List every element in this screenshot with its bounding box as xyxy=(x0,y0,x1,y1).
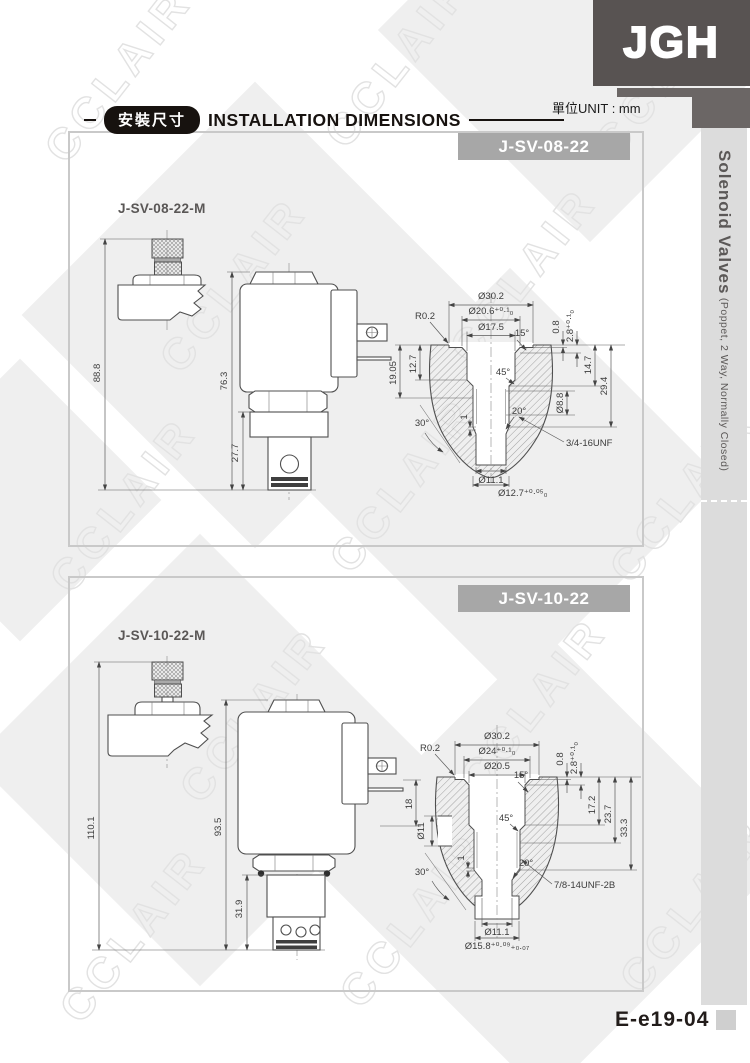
sidebar-category-subtitle: (Poppet, 2 Way, Normally Closed) xyxy=(718,294,730,471)
sidebar-dash-divider xyxy=(701,500,747,502)
dim-d08: 0.8 xyxy=(551,320,562,333)
drawing-variant-m: J-SV-10-22-M 110.1 xyxy=(86,628,212,950)
technical-drawing-jsv-10-22: J-SV-10-22-M 110.1 xyxy=(70,578,642,990)
dim-d11: Ø11 xyxy=(416,822,427,839)
dim-a30: 30° xyxy=(415,867,430,878)
dim-v333: 33.3 xyxy=(619,819,630,838)
header-rule-right xyxy=(469,119,564,121)
dim-one: 1 xyxy=(456,855,467,860)
dim-d158: Ø15.8⁺⁰·⁰⁹₊₀.₀₇ xyxy=(465,941,530,952)
dim-d08: 0.8 xyxy=(555,752,566,765)
catalog-page: CCLAIR CCLAIR CCLAIR CCLAIR CCLAIR CCLAI… xyxy=(0,0,750,1063)
dim-d127: Ø12.7⁺⁰·⁰⁵₀ xyxy=(498,488,548,499)
sidebar-tab xyxy=(692,96,750,128)
dim-d205: Ø20.5 xyxy=(484,761,510,772)
dim-d302: Ø30.2 xyxy=(478,291,504,302)
drawing-cavity: Ø11 Ø30.2 Ø24⁺⁰·¹₀ Ø20.5 15° R0.2 xyxy=(415,725,641,952)
dim-a15: 15° xyxy=(515,328,530,339)
dim-a45: 45° xyxy=(499,813,514,824)
dim-d111: Ø11.1 xyxy=(478,475,503,486)
dim-cartridge: 31.9 xyxy=(234,900,245,919)
dim-d24: Ø24⁺⁰·¹₀ xyxy=(478,746,515,757)
dim-d88: Ø8.8 xyxy=(555,393,566,414)
dim-a45: 45° xyxy=(496,367,511,378)
dim-a30: 30° xyxy=(415,418,430,429)
sidebar-category-bar: Solenoid Valves (Poppet, 2 Way, Normally… xyxy=(701,128,747,1005)
model-banner: J-SV-08-22 xyxy=(458,133,630,160)
panel-jsv-10-22: J-SV-10-22 J-SV-10-22-M xyxy=(68,576,644,992)
drawing-cavity: Ø30.2 Ø20.6⁺⁰·¹₀ Ø17.5 15° R0.2 19.05 12… xyxy=(388,291,625,499)
dim-v1905: 19.05 xyxy=(388,361,399,385)
dim-v172: 17.2 xyxy=(587,796,598,815)
dim-r02: R0.2 xyxy=(420,743,440,754)
dim-d28: 2.8⁺⁰·¹₀ xyxy=(565,310,576,342)
dim-d302: Ø30.2 xyxy=(484,731,510,742)
thread-callout: 3/4-16UNF xyxy=(566,438,613,449)
dim-overall: 93.5 xyxy=(213,818,224,837)
model-banner: J-SV-10-22 xyxy=(458,585,630,612)
variant-model-label: J-SV-08-22-M xyxy=(118,201,206,216)
dim-overall: 76.3 xyxy=(219,372,230,391)
page-title: INSTALLATION DIMENSIONS xyxy=(208,110,461,131)
dim-v147: 14.7 xyxy=(583,356,594,375)
header-rule-left xyxy=(84,119,96,121)
dim-connector: 18 xyxy=(404,799,415,810)
section-header: 安裝尺寸 INSTALLATION DIMENSIONS xyxy=(84,106,564,134)
unit-note: 單位UNIT : mm xyxy=(552,98,641,117)
dim-d175: Ø17.5 xyxy=(478,322,504,333)
sidebar-category-title: Solenoid Valves xyxy=(715,150,734,294)
brand-logo-text: JGH xyxy=(623,18,719,68)
technical-drawing-jsv-08-22: J-SV-08-22-M 88.8 xyxy=(70,133,642,545)
drawing-variant-m: J-SV-08-22-M 88.8 xyxy=(92,201,206,490)
dim-one: 1 xyxy=(459,414,470,419)
dim-d28: 2.8⁺⁰·¹₀ xyxy=(569,742,580,774)
dim-v237: 23.7 xyxy=(603,805,614,824)
sidebar-category-text: Solenoid Valves (Poppet, 2 Way, Normally… xyxy=(714,150,734,970)
dim-cartridge: 27.7 xyxy=(230,444,241,463)
variant-model-label: J-SV-10-22-M xyxy=(118,628,206,643)
page-code: E-e19-04 xyxy=(615,1008,709,1032)
dim-overall-m: 88.8 xyxy=(92,364,103,383)
dim-overall-m: 110.1 xyxy=(86,816,97,839)
dim-v294: 29.4 xyxy=(599,377,610,396)
dim-a20: 20° xyxy=(512,406,527,417)
panel-jsv-08-22: J-SV-08-22 J-SV-08-22-M xyxy=(68,131,644,547)
footer-square xyxy=(716,1010,736,1030)
dim-d206: Ø20.6⁺⁰·¹₀ xyxy=(469,306,514,317)
header-badge-zh: 安裝尺寸 xyxy=(104,106,200,134)
dim-r02: R0.2 xyxy=(415,311,435,322)
dim-v127: 12.7 xyxy=(408,355,419,374)
brand-logo: JGH xyxy=(593,0,750,86)
footer: E-e19-04 xyxy=(615,1008,736,1032)
dim-d111: Ø11.1 xyxy=(484,927,509,938)
dim-a15: 15° xyxy=(514,770,529,781)
thread-callout: 7/8-14UNF-2B xyxy=(554,880,615,891)
